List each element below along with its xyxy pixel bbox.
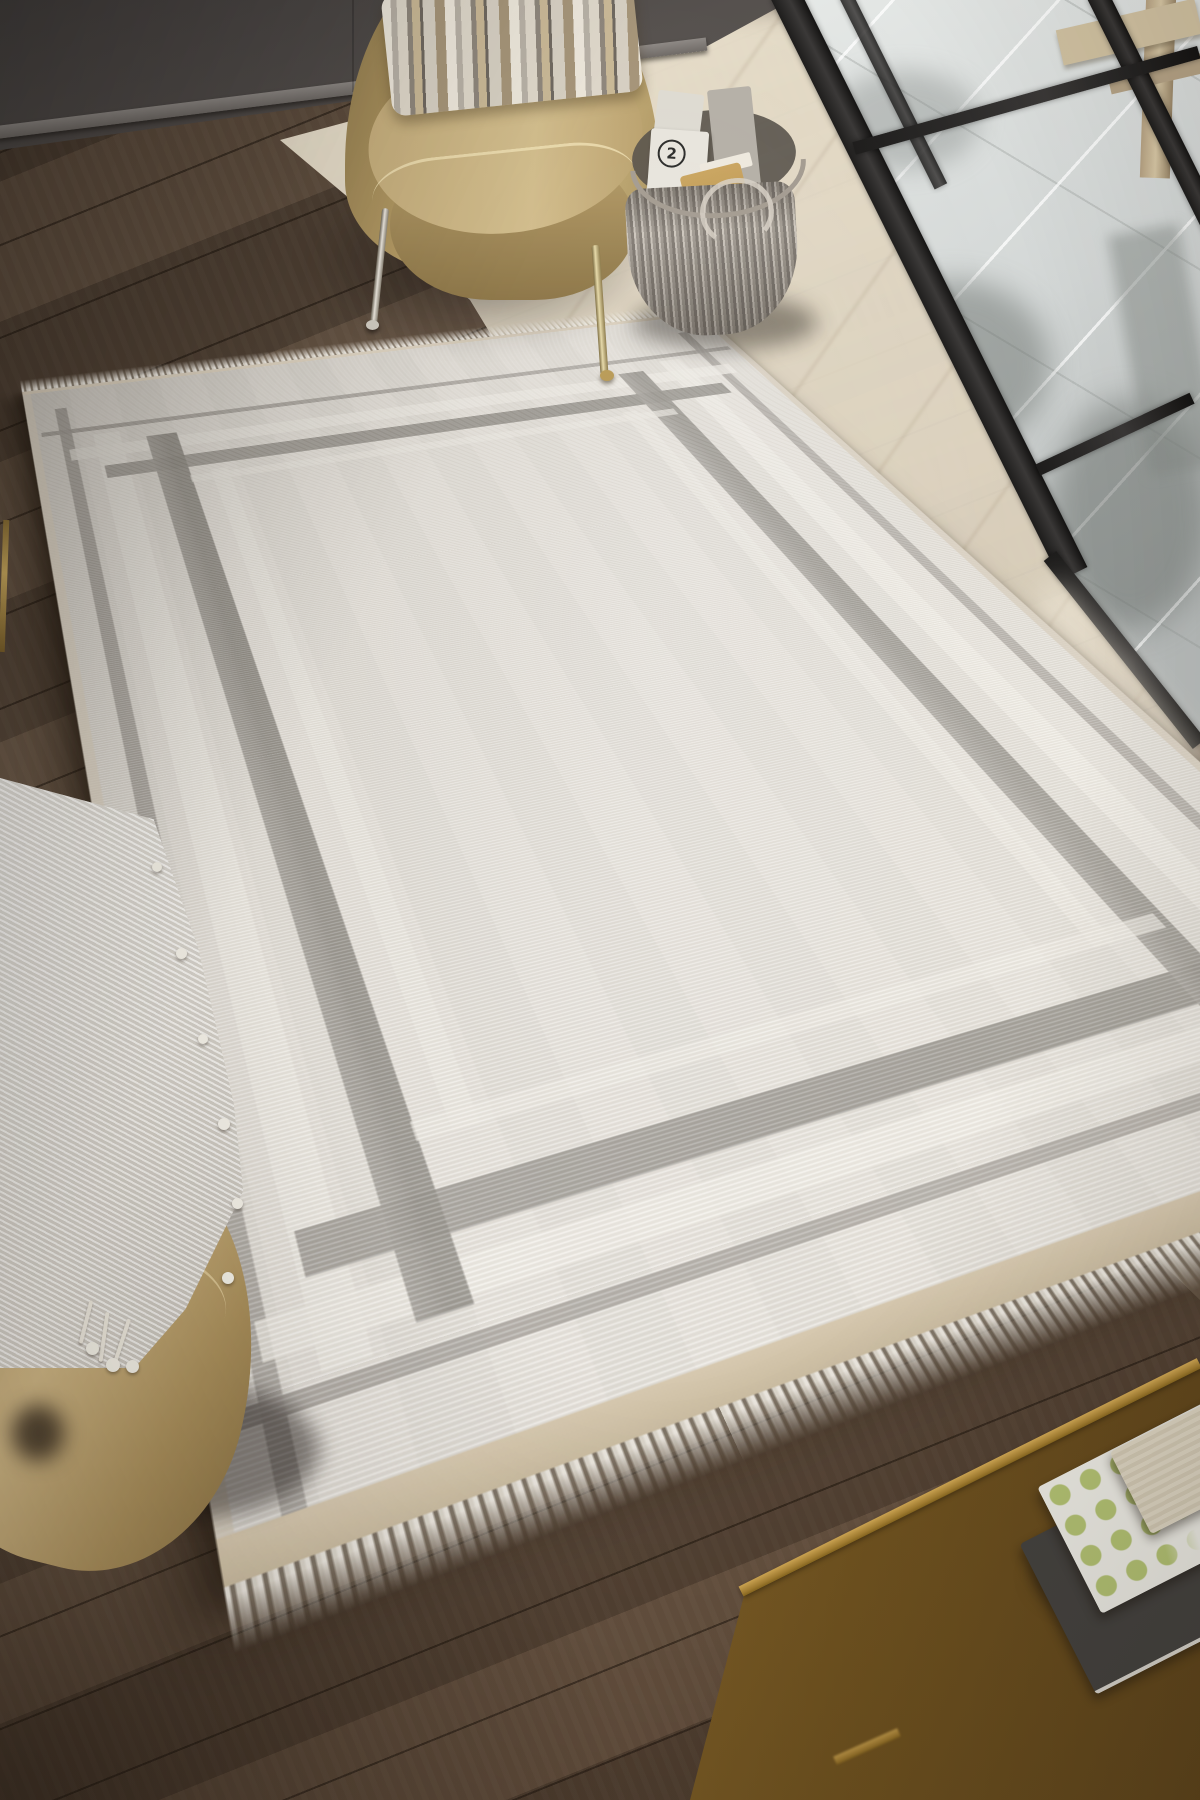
chair-foot	[600, 370, 614, 381]
throw-pompom	[232, 1198, 243, 1209]
wall-corner-line	[352, 0, 354, 92]
throw-pompom	[222, 1272, 234, 1284]
magazine-number-badge: 2	[657, 139, 687, 169]
living-room-photo: 2	[0, 0, 1200, 1800]
throw-pompom	[198, 1034, 208, 1044]
chair-foot	[366, 320, 379, 330]
throw-pompom	[86, 1342, 99, 1355]
throw-pompom	[106, 1358, 120, 1372]
throw-pompom	[176, 948, 187, 959]
throw-pompom	[218, 1118, 230, 1130]
throw-pompom	[152, 862, 162, 872]
ottoman-leg	[12, 1405, 64, 1461]
throw-pompom	[126, 1360, 139, 1373]
